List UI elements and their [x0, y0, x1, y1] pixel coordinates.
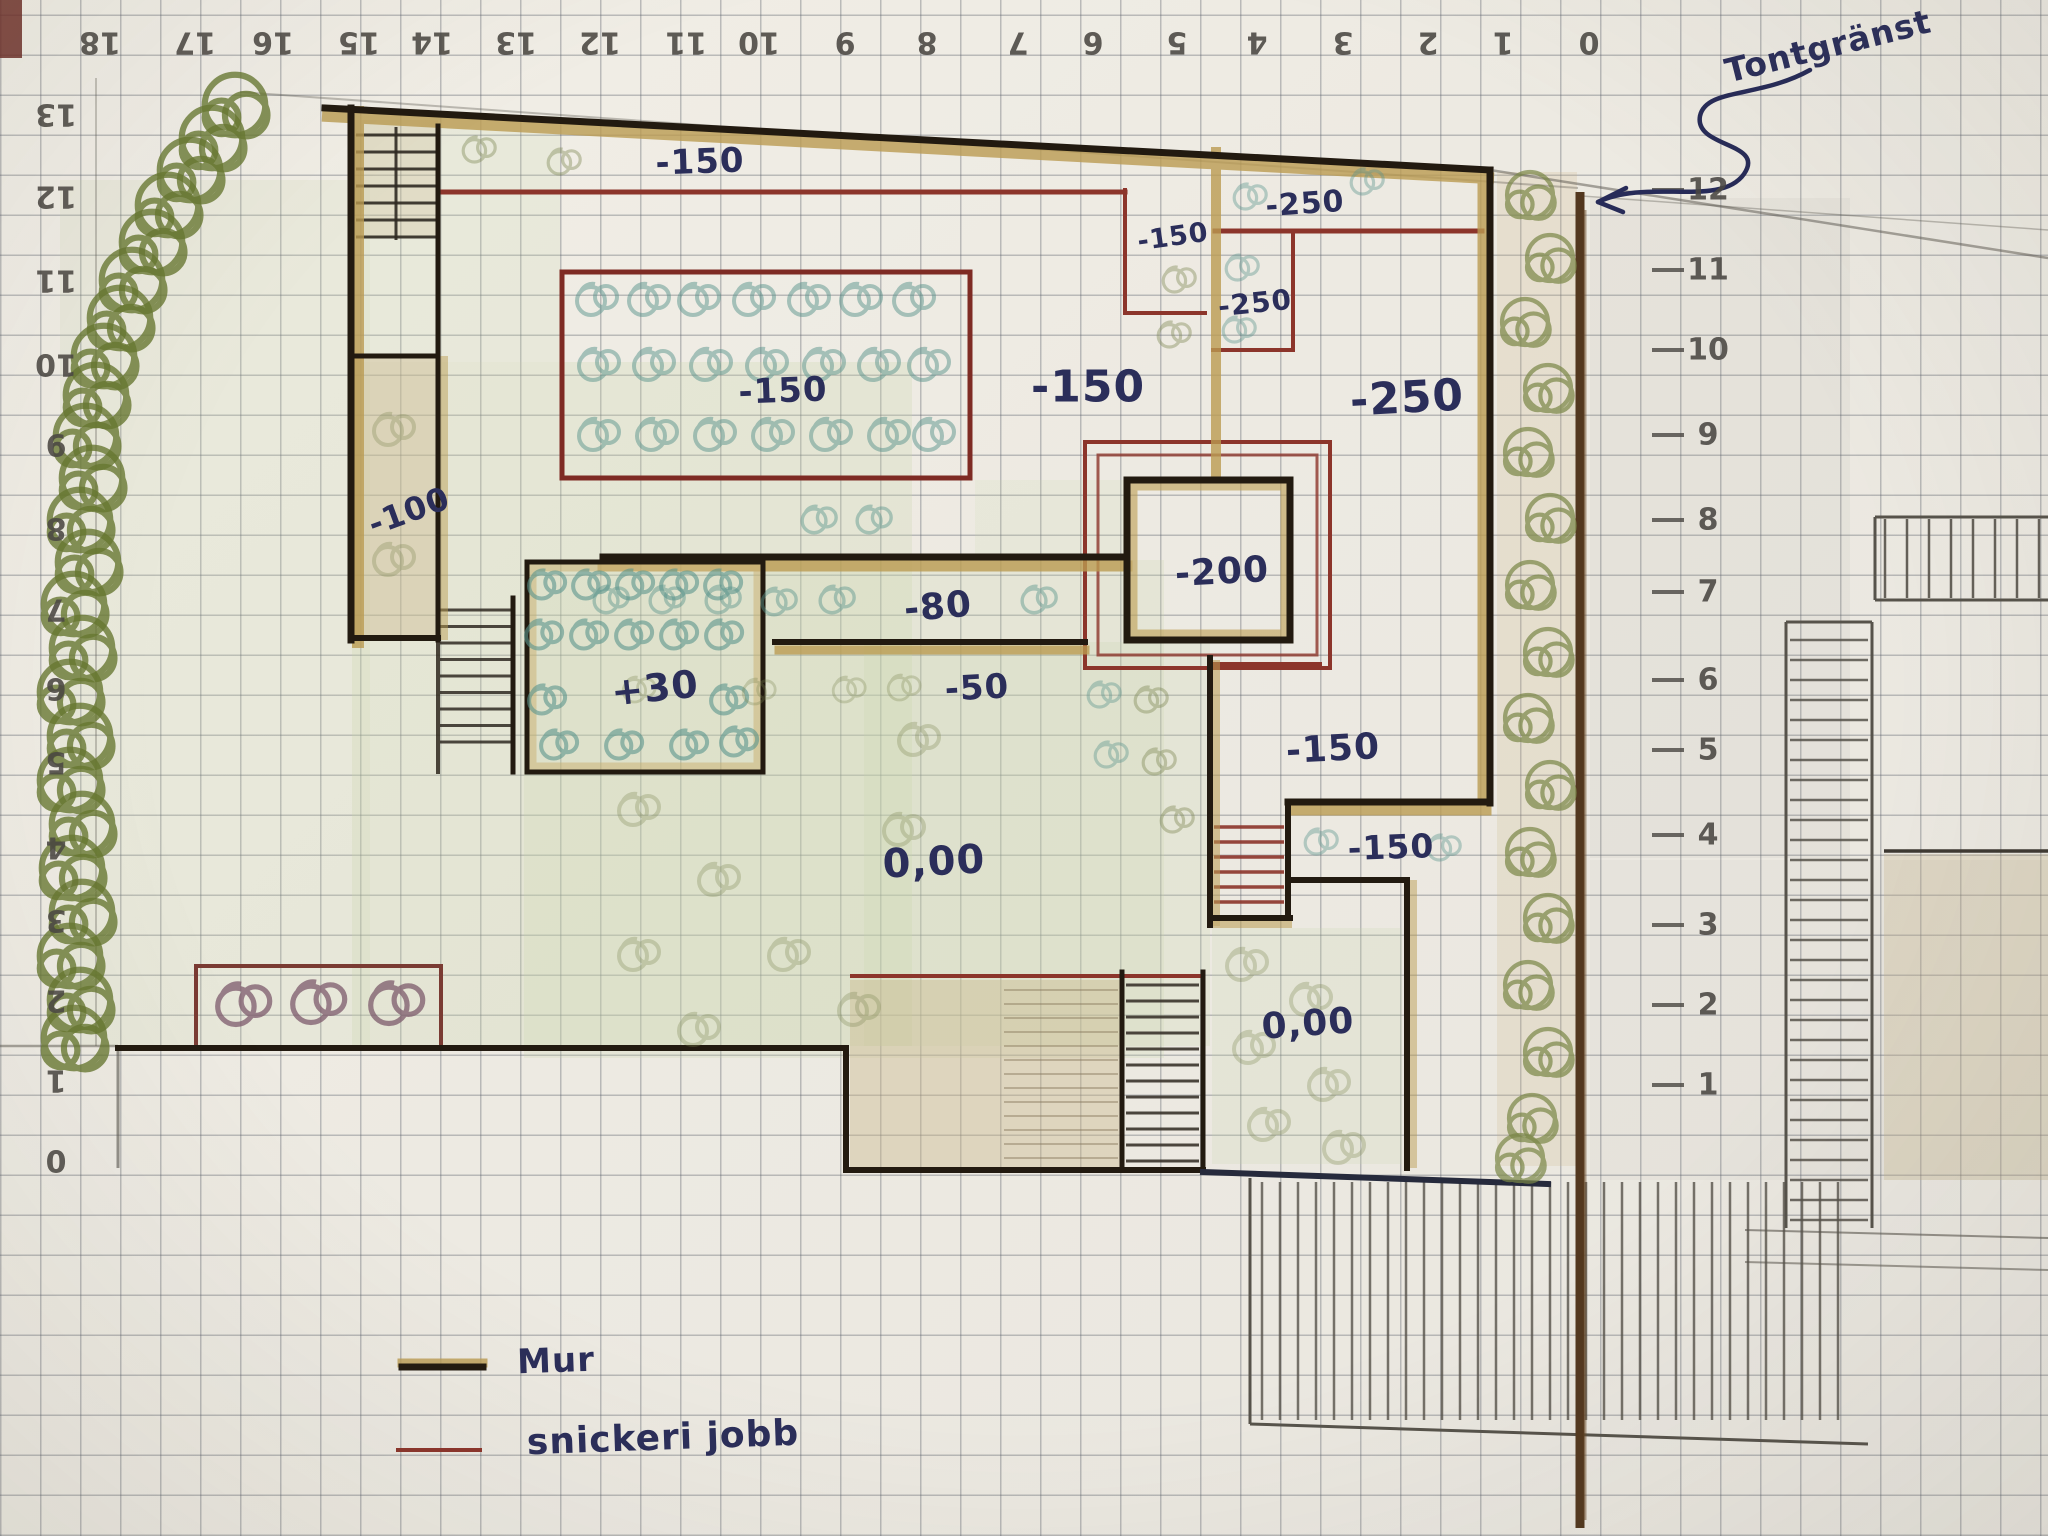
elevation-label-ne-room-upper: -250: [1264, 184, 1345, 224]
elevation-label-top-walk: -150: [655, 140, 745, 183]
axis-left-number: 3: [46, 903, 67, 938]
elevation-label-se-room-lower: -150: [1347, 826, 1435, 868]
axis-top-number: 7: [1008, 25, 1029, 60]
axis-top-number: 14: [411, 25, 453, 60]
plant-scribble: [914, 419, 954, 450]
axis-top-number: 15: [338, 25, 380, 60]
axis-right-number: 9: [1698, 418, 1719, 453]
axis-left-number: 12: [35, 179, 77, 214]
axis-right-number: 2: [1698, 988, 1719, 1023]
axis-left-number: 13: [35, 97, 77, 132]
axis-left-number: 6: [46, 671, 67, 706]
axis-left-number: 11: [35, 263, 77, 298]
axis-top-number: 1: [1493, 25, 1514, 60]
elevation-label-pool: -200: [1174, 549, 1270, 595]
axis-top-number: 5: [1167, 25, 1188, 60]
axis-top-number: 3: [1333, 25, 1354, 60]
axis-right-number: 7: [1698, 575, 1719, 610]
elevation-label-upper-terrace: -150: [1031, 362, 1145, 413]
elevation-label-path-80: -80: [902, 584, 973, 631]
axis-right-number: 11: [1687, 253, 1729, 288]
axis-top-number: 9: [835, 25, 856, 60]
plant-scribble: [1351, 169, 1383, 194]
elevation-label-raised-bed: +30: [609, 662, 701, 715]
axis-left-number: 4: [46, 830, 67, 865]
elevation-label-lawn: 0,00: [882, 836, 987, 887]
plant-scribble: [909, 349, 949, 380]
axis-top-number: 4: [1247, 25, 1268, 60]
plant-scribble: [789, 284, 829, 315]
elevation-label-path-50: -50: [944, 666, 1010, 709]
axis-top-number: 6: [1083, 25, 1104, 60]
axis-top-number: 12: [579, 25, 621, 60]
plant-scribble: [577, 284, 617, 315]
plant-scribble: [734, 284, 774, 315]
axis-right-number: 3: [1698, 908, 1719, 943]
axis-right-number: 5: [1698, 733, 1719, 768]
axis-top-number: 0: [1579, 25, 1600, 60]
axis-right-number: 4: [1698, 818, 1719, 853]
plant-scribble: [629, 284, 669, 315]
axis-left-number: 2: [46, 983, 67, 1018]
plant-scribble: [679, 284, 719, 315]
axis-left-number: 7: [46, 592, 67, 627]
plant-scribble: [1158, 322, 1190, 347]
plant-scribble: [1305, 829, 1337, 854]
axis-top-number: 10: [738, 25, 780, 60]
axis-top-number: 16: [252, 25, 294, 60]
axis-right-number: 10: [1687, 333, 1729, 368]
axis-right-number: 1: [1698, 1068, 1719, 1103]
legend-wall-label: Mur: [516, 1340, 595, 1383]
axis-top-number: 17: [174, 25, 216, 60]
axis-right-number: 8: [1698, 503, 1719, 538]
axis-left-number: 9: [46, 427, 67, 462]
axis-left-number: 5: [46, 745, 67, 780]
elevation-label-east-terrace: -250: [1349, 370, 1466, 427]
elevation-label-se-garden: 0,00: [1260, 1000, 1355, 1047]
axis-top-number: 8: [917, 25, 938, 60]
plant-scribble: [1163, 267, 1195, 292]
site-plan-drawing: [0, 0, 2048, 1536]
scanned-garden-plan: -150 -150 -250 -250 -150 -250 -150 -100 …: [0, 0, 2048, 1536]
axis-left-number: 1: [46, 1063, 67, 1098]
axis-left-number: 0: [46, 1143, 67, 1178]
elevation-label-se-room-upper: -150: [1285, 726, 1381, 772]
axis-top-number: 18: [79, 25, 121, 60]
axis-left-number: 8: [46, 511, 67, 546]
axis-top-number: 11: [665, 25, 707, 60]
axis-top-number: 13: [495, 25, 537, 60]
plant-scribble: [1234, 184, 1266, 209]
property-boundary-line: [1580, 192, 1585, 1528]
plant-scribble: [841, 284, 881, 315]
axis-left-number: 10: [35, 347, 77, 382]
plant-scribble: [894, 284, 934, 315]
axis-right-number: 6: [1698, 663, 1719, 698]
elevation-label-flower-bed: -150: [738, 369, 828, 412]
axis-top-number: 2: [1418, 25, 1439, 60]
axis-right-number: 12: [1687, 173, 1729, 208]
plant-scribble: [1226, 255, 1258, 280]
